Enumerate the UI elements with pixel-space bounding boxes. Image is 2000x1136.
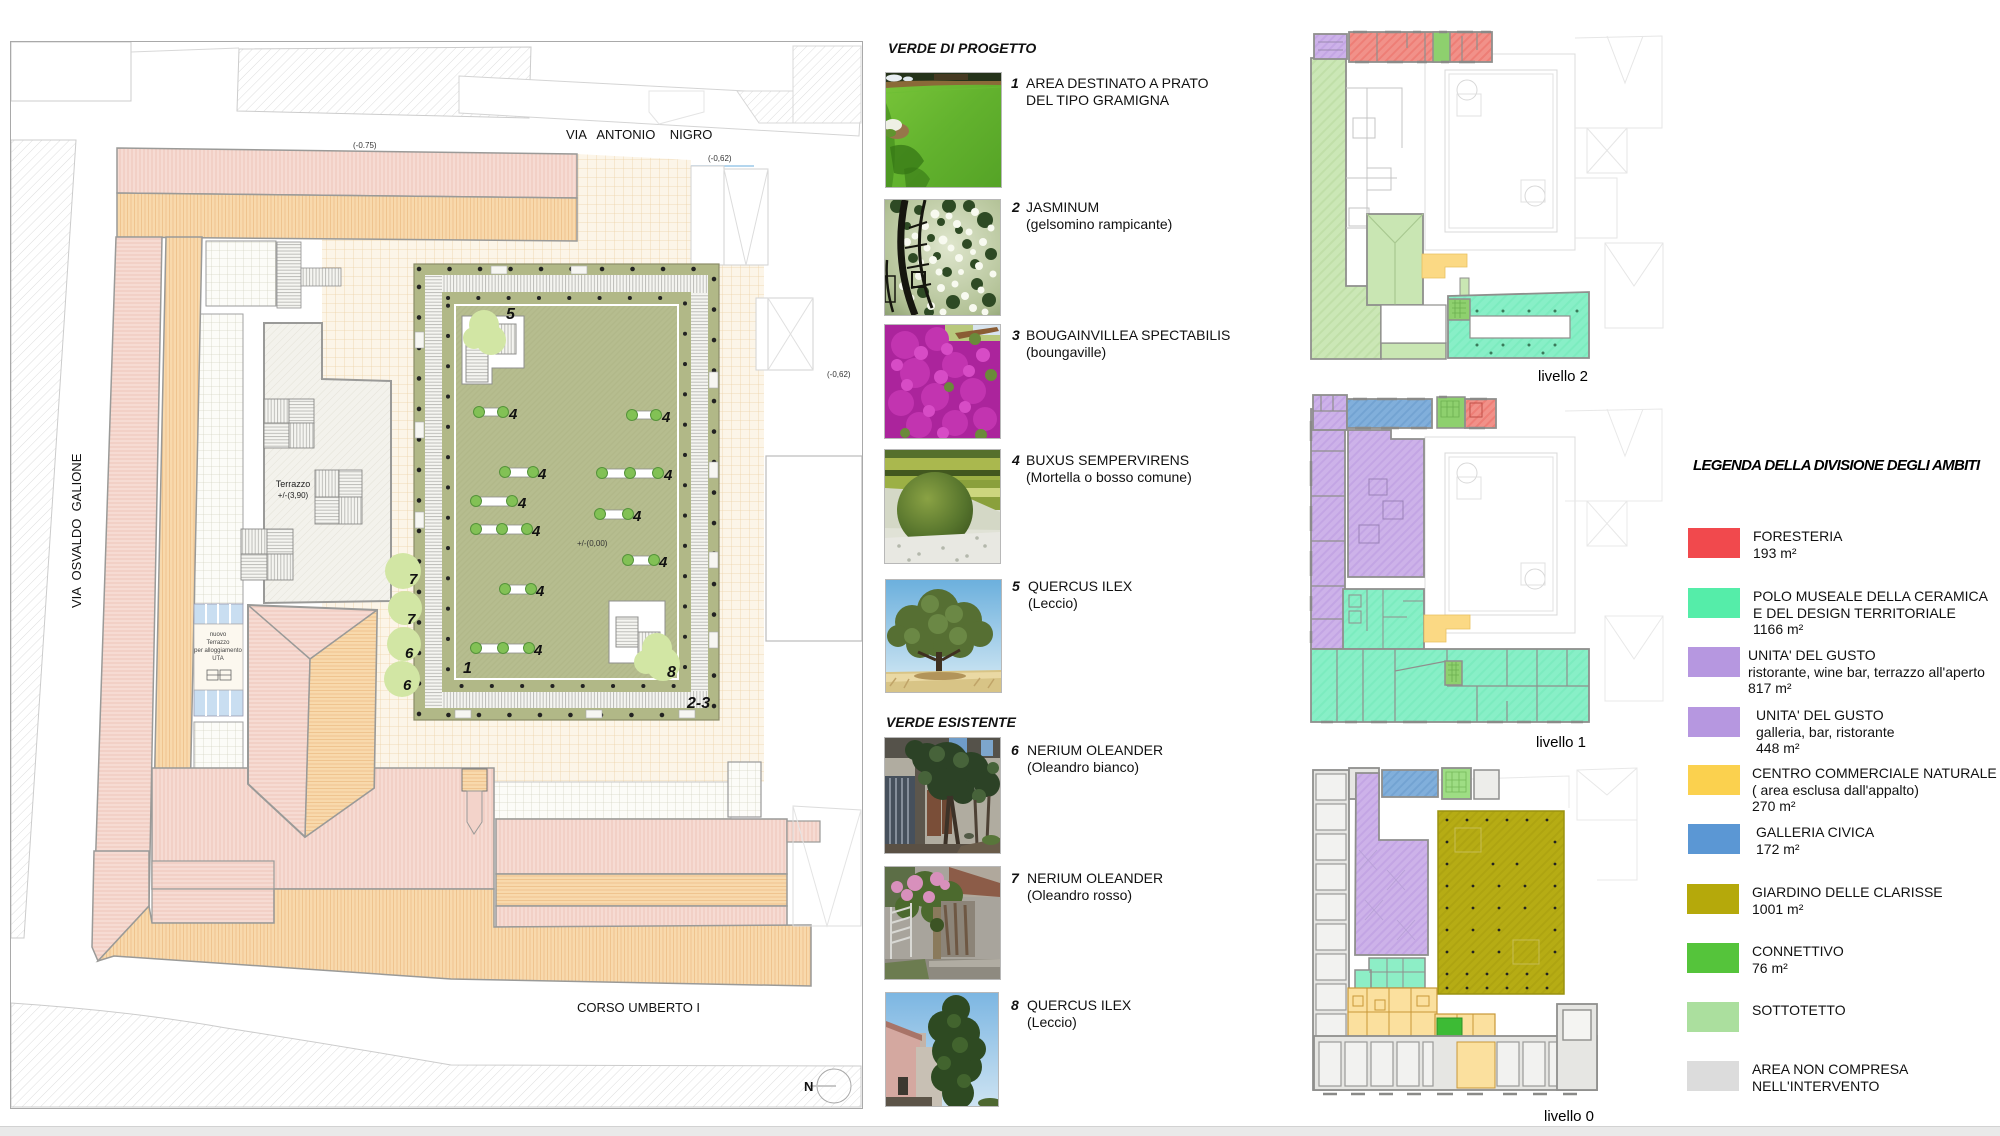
svg-text:4: 4	[658, 554, 668, 571]
svg-text:+/-(3,90): +/-(3,90)	[278, 491, 309, 500]
svg-text:nuovo: nuovo	[210, 632, 227, 638]
svg-text:CORSO UMBERTO I: CORSO UMBERTO I	[577, 1000, 700, 1015]
svg-text:4: 4	[663, 467, 673, 484]
svg-text:+/-(0,00): +/-(0,00)	[577, 539, 608, 548]
svg-text:4: 4	[517, 495, 527, 512]
svg-text:N: N	[804, 1079, 813, 1094]
svg-text:Terrazzo: Terrazzo	[276, 479, 311, 489]
svg-text:6: 6	[405, 645, 414, 662]
svg-text:4: 4	[533, 642, 543, 659]
svg-text:6: 6	[403, 677, 412, 694]
svg-text:2-3: 2-3	[686, 695, 710, 712]
svg-text:5: 5	[506, 306, 516, 323]
svg-text:Terrazzo: Terrazzo	[206, 640, 230, 646]
svg-text:7: 7	[409, 571, 418, 588]
svg-text:4: 4	[661, 409, 671, 426]
svg-text:per alloggiamento: per alloggiamento	[194, 648, 242, 654]
svg-text:8: 8	[667, 664, 676, 681]
svg-text:7: 7	[407, 611, 416, 628]
svg-text:VIA OSVALDO GALIONE: VIA OSVALDO GALIONE	[69, 453, 84, 608]
svg-text:4: 4	[537, 466, 547, 483]
svg-text:4: 4	[508, 406, 518, 423]
svg-text:(-0,62): (-0,62)	[827, 370, 851, 379]
svg-text:UTA: UTA	[212, 656, 224, 662]
svg-text:4: 4	[531, 523, 541, 540]
svg-text:(-0.75): (-0.75)	[353, 141, 377, 150]
svg-text:4: 4	[632, 508, 642, 525]
svg-text:4: 4	[535, 583, 545, 600]
svg-text:1: 1	[463, 660, 472, 677]
svg-text:VIA ANTONIO NIGRO: VIA ANTONIO NIGRO	[566, 127, 712, 142]
svg-text:(-0,62): (-0,62)	[708, 154, 732, 163]
